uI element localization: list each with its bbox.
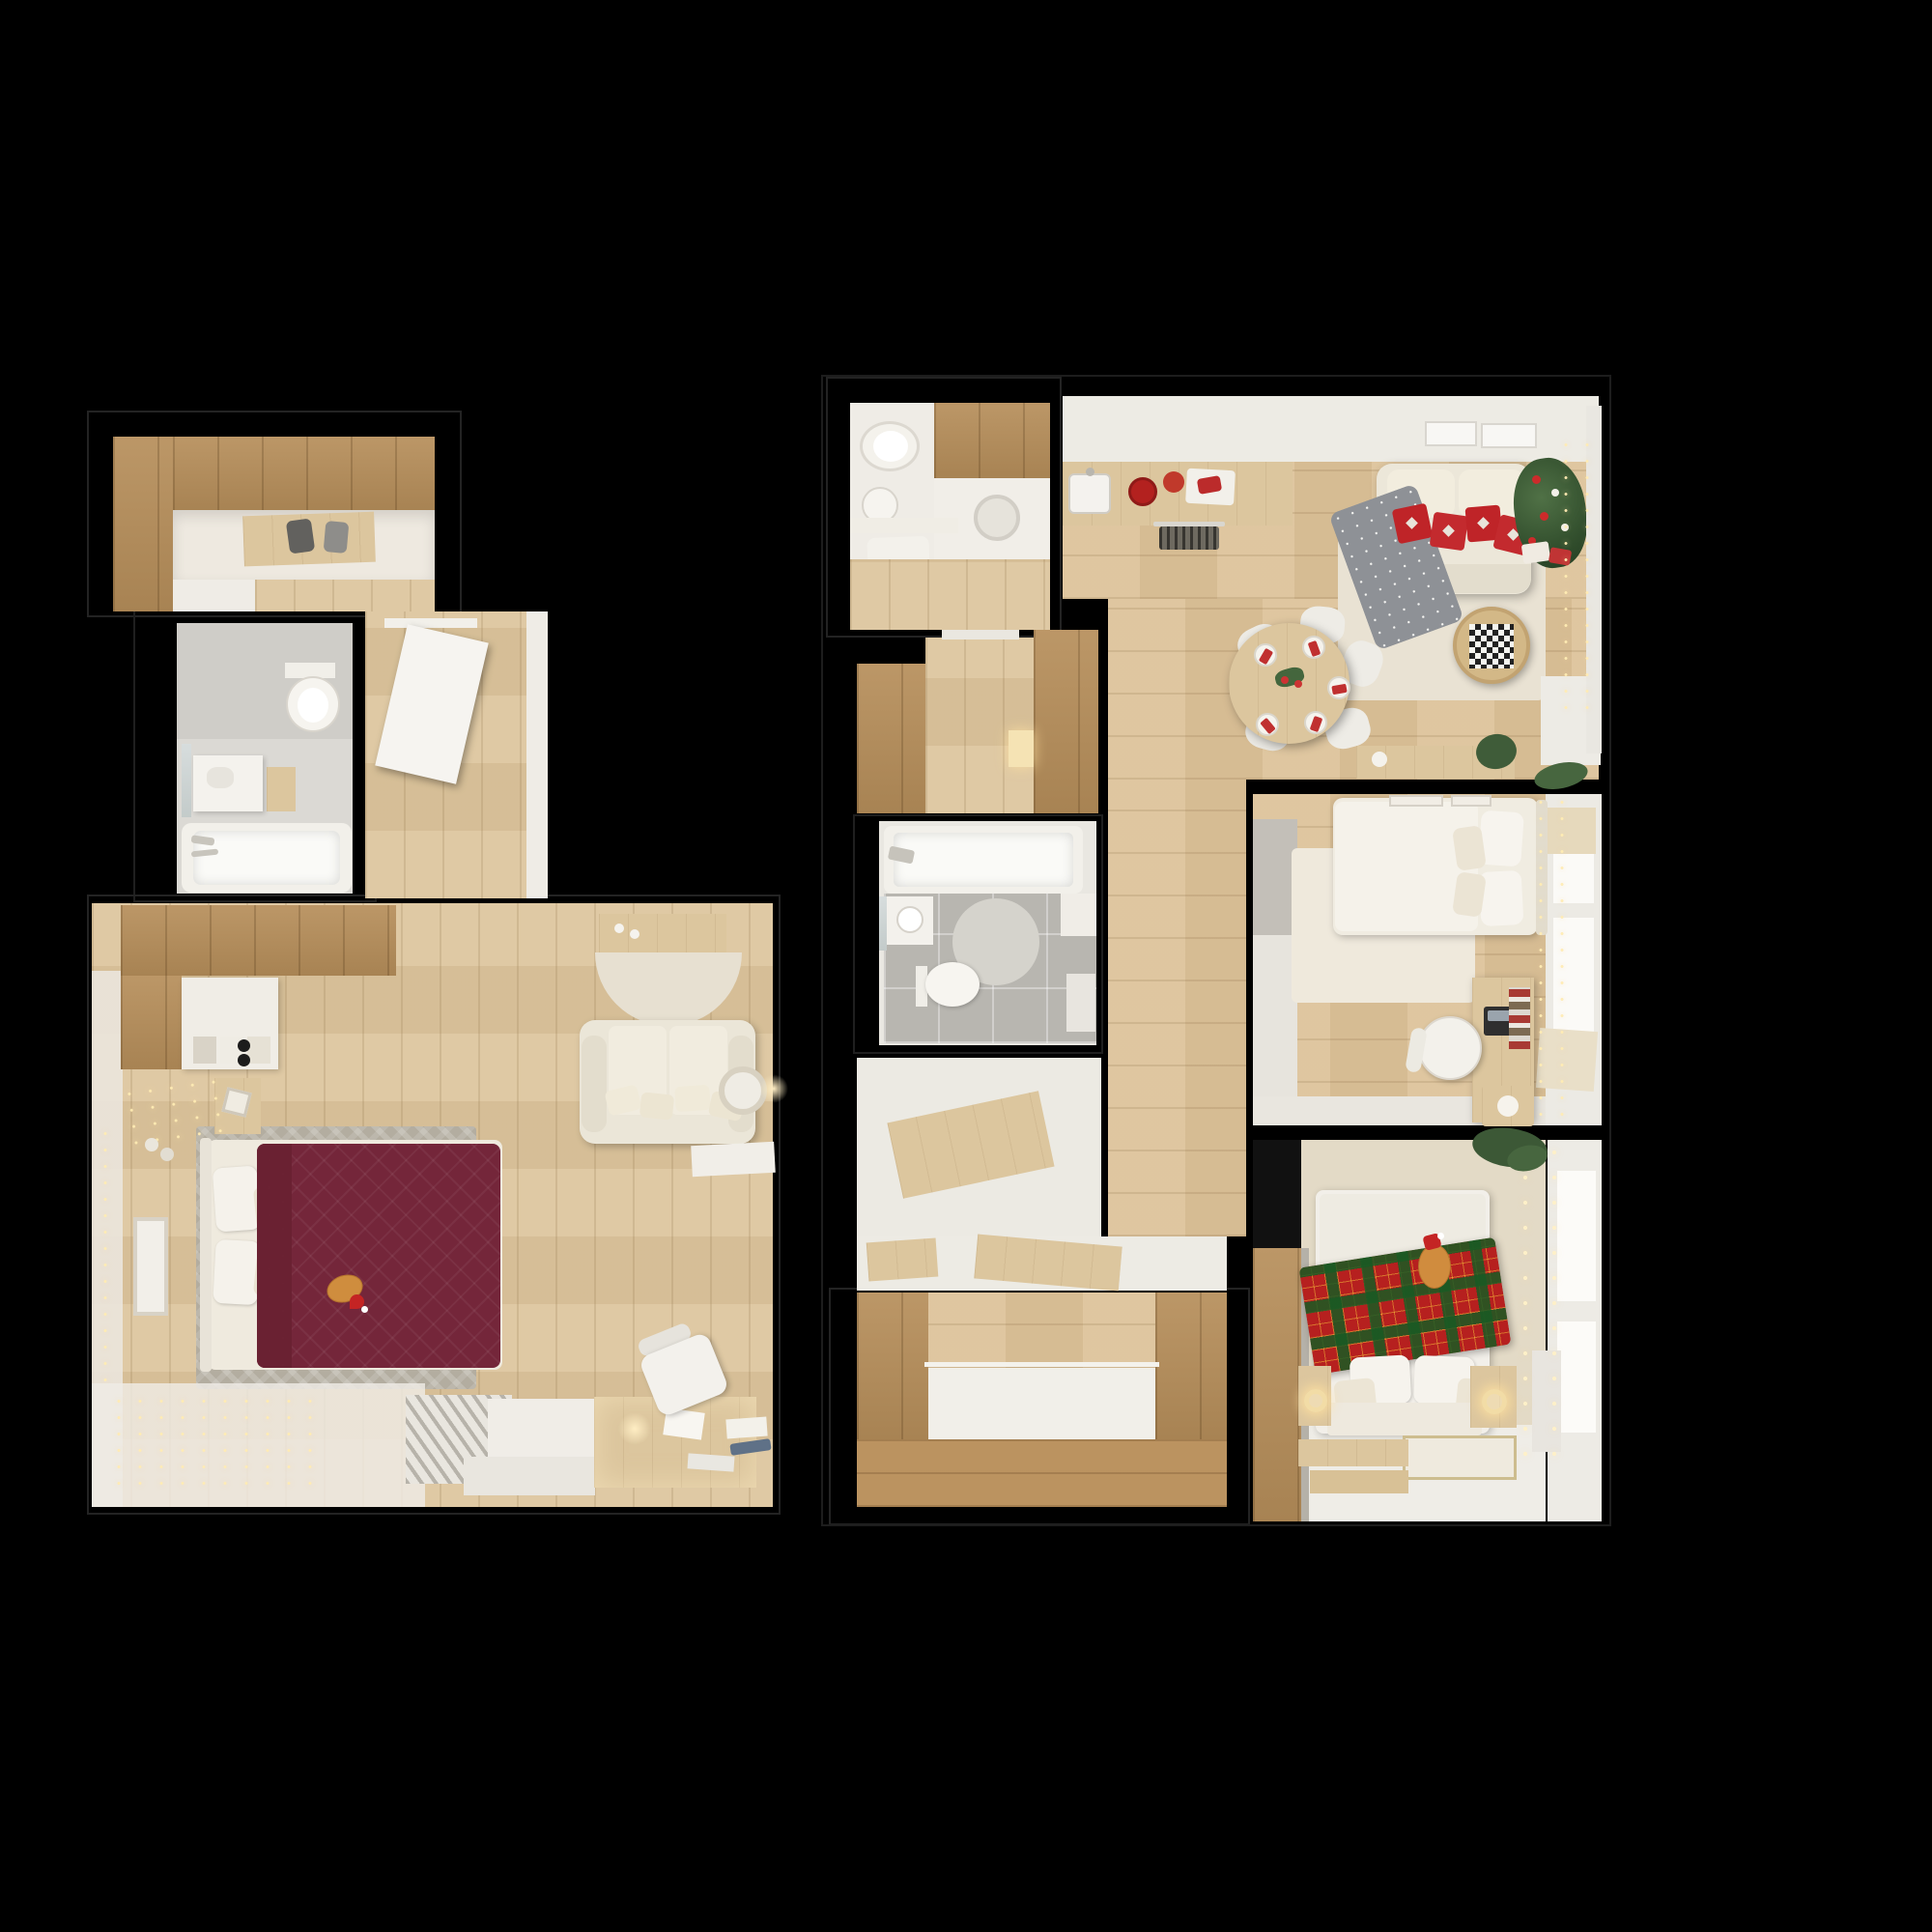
hall-wardrobe-right (1034, 630, 1098, 813)
wall-frame-1 (1389, 795, 1443, 807)
wc-cabinet-wood (934, 403, 1050, 478)
wall-frame-2 (1451, 795, 1492, 807)
hall-door-frame (942, 630, 1019, 639)
bathroom2-mirror (879, 896, 887, 951)
tv-console (599, 914, 726, 952)
closet-floor-wood (255, 580, 435, 611)
bed1-quilt (257, 1144, 500, 1368)
bedroom3-wardrobe (1253, 1248, 1301, 1521)
apartment-floor-plan (0, 0, 1932, 1932)
tree-ornament-red-1 (1532, 475, 1541, 484)
fairy-lights-corner (108, 1393, 316, 1497)
bathroom2-shelf (1061, 894, 1096, 936)
leaning-art-frame (133, 1217, 168, 1316)
desk-magazine (688, 1453, 735, 1471)
sofa-left-arm (582, 1036, 607, 1132)
ceiling-light-1 (1425, 421, 1477, 446)
closet-floor-white (173, 580, 255, 611)
closet-wardrobe-top (173, 437, 435, 510)
balcony-back-wall (928, 1293, 1155, 1368)
kitchen-faucet (1086, 468, 1094, 476)
hall-corridor-floor (925, 638, 1034, 813)
bathroom2-sink (896, 906, 923, 933)
bed1-pillow-2 (213, 1239, 260, 1305)
bedroom3-doorway-dark (1253, 1140, 1301, 1248)
balcony-bench-right (1155, 1293, 1227, 1439)
side-table-lamp-glow (759, 1074, 788, 1103)
wc-floor-wood (850, 559, 1050, 630)
dining-candle-1 (1281, 676, 1289, 684)
bed3-bench (1327, 1403, 1482, 1435)
dining-candle-2 (1294, 680, 1302, 688)
bed2-pillow-small-1 (1452, 825, 1487, 871)
desk2-chair (1418, 1016, 1482, 1080)
kitchen-plate-red-2 (1163, 471, 1184, 493)
bathroom1-side-cabinet (267, 767, 296, 811)
bed1-quilt-fold (257, 1144, 292, 1368)
balcony-tile-floor (928, 1368, 1155, 1439)
bathtub1-inner (193, 831, 340, 885)
tree-ornament-red-2 (1540, 512, 1548, 521)
bed2-pillow-small-2 (1452, 871, 1487, 918)
chessboard (1469, 624, 1514, 668)
kitchen-sink (1068, 473, 1111, 514)
toilet2-bowl (925, 962, 980, 1007)
sofa-pillow-3 (674, 1085, 711, 1112)
bedroom2-lights (1530, 794, 1565, 1122)
cat-santa-right (1418, 1244, 1451, 1289)
wc-toilet-seat (873, 431, 908, 462)
wc-washer-door (974, 495, 1020, 541)
hall-shelf-glow (1009, 730, 1034, 767)
tv-console-knob-1 (614, 923, 624, 933)
cat-santa-left-pom (361, 1306, 368, 1313)
shelf-cubby-3 (247, 1037, 270, 1064)
kitchen-plate-red-1 (1128, 477, 1157, 506)
bed1-headboard (200, 1138, 212, 1372)
console-vase (1372, 752, 1387, 767)
bathroom1-sink (207, 767, 234, 788)
hallway1-wall-strip (526, 611, 548, 898)
sofa-side-desk (691, 1142, 776, 1177)
wall-sconce-1 (145, 1138, 158, 1151)
desk-step-white (464, 1457, 595, 1495)
desk2-books (1509, 987, 1530, 1049)
shelf-speaker-2 (238, 1054, 250, 1066)
living-window-lights (1555, 437, 1600, 713)
desk-lamp-glow (618, 1412, 651, 1445)
corridor-floor (1108, 780, 1246, 1236)
bedroom1-cabinet-left-col (121, 976, 182, 1069)
wall-sconce-2 (160, 1148, 174, 1161)
star-lights (1511, 1140, 1573, 1459)
toilet1-seat (298, 688, 328, 723)
shelf-cubby-1 (193, 1037, 216, 1064)
hall-wardrobe-left (857, 664, 925, 813)
closet-wardrobe-left (113, 437, 173, 611)
fairy-lights-nightstand (118, 1073, 226, 1152)
bathroom2-radiator (1066, 974, 1095, 1032)
lamp-ring-left (1304, 1389, 1327, 1412)
balcony-edge-strip (924, 1362, 1159, 1367)
bedroom1-cabinet-band (121, 905, 396, 976)
sofa-pillow-2 (639, 1092, 675, 1120)
bathtub2-inner (894, 833, 1073, 887)
gift-box-white (1521, 541, 1551, 564)
wc-shelf (850, 518, 958, 533)
balcony-bench-bottom (857, 1439, 1227, 1507)
cat-santa-right-pom (1437, 1233, 1444, 1239)
fairy-lights-left-wall (95, 1125, 122, 1386)
lamp-ring-right (1482, 1389, 1507, 1414)
bathroom1-mirror (182, 744, 191, 817)
bedroom3-step-1 (1298, 1439, 1408, 1466)
kitchen-stove (1159, 526, 1219, 550)
lower-hall-wood-piece-3 (867, 1238, 939, 1282)
shelf-speaker-1 (238, 1039, 250, 1052)
shoes-pair-dark (286, 518, 315, 554)
balcony-bench-left (857, 1293, 928, 1439)
bedroom2-box-logo (1497, 1095, 1519, 1117)
desk-papers-2 (725, 1417, 767, 1439)
ceiling-light-2 (1481, 423, 1537, 448)
shoes-pair-gray (324, 521, 350, 554)
bedroom3-rug (1403, 1435, 1517, 1480)
tv-console-knob-2 (630, 929, 639, 939)
entry-door-frame (384, 618, 477, 628)
bedroom3-step-2 (1310, 1470, 1408, 1493)
